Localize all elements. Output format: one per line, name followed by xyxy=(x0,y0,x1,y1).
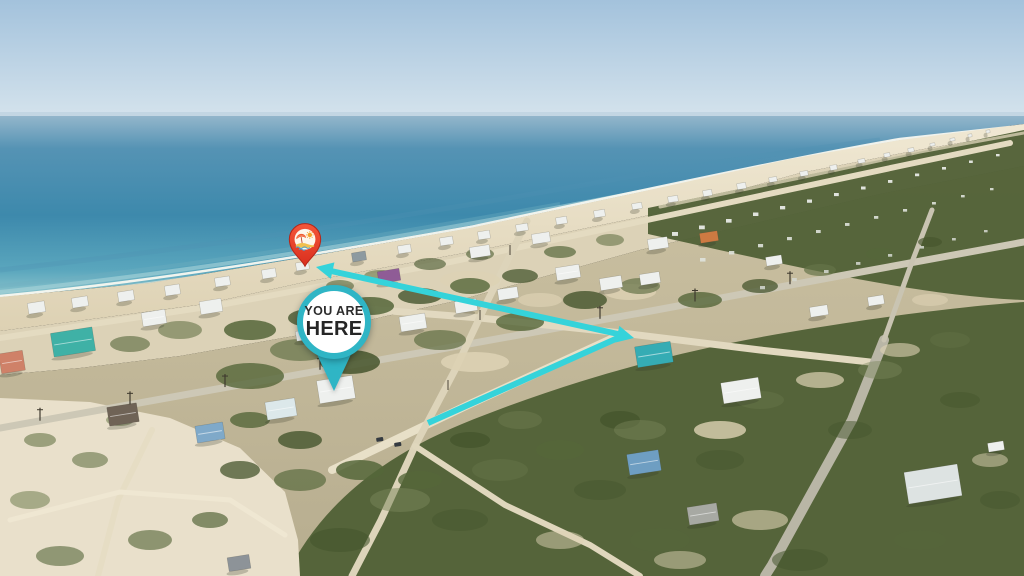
route-line xyxy=(331,271,618,334)
route-overlay xyxy=(0,0,1024,576)
route-arrowhead xyxy=(616,326,634,343)
route-line xyxy=(428,337,620,423)
beach-access-pin xyxy=(285,221,325,268)
map-pin-icon xyxy=(285,221,325,268)
aerial-map: YOU ARE HERE xyxy=(0,0,1024,576)
